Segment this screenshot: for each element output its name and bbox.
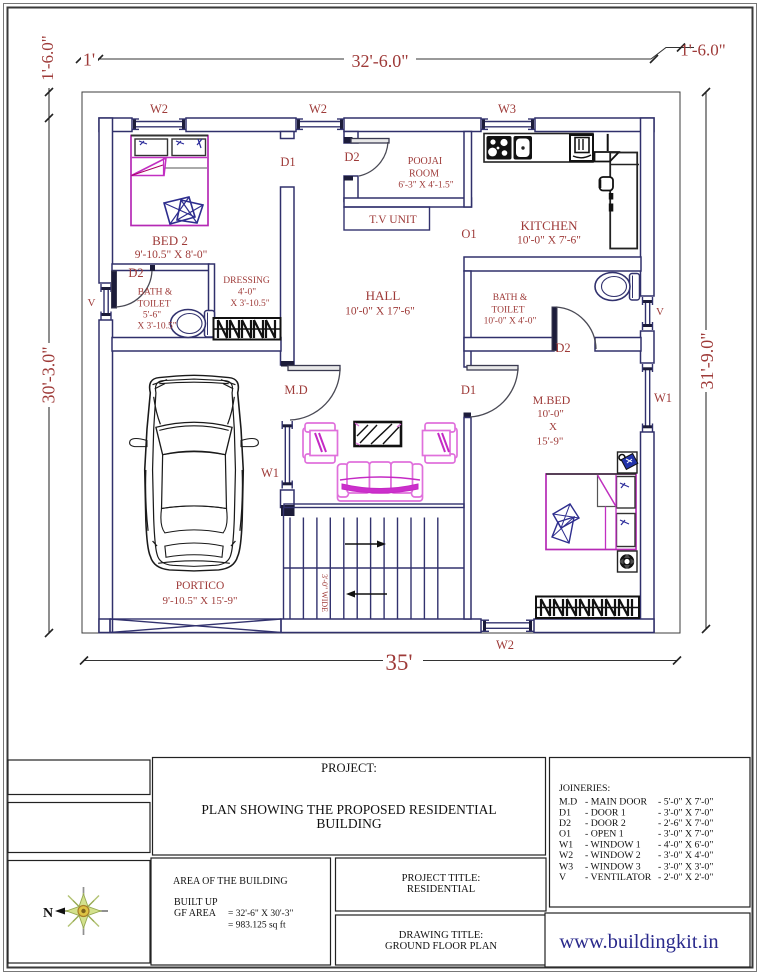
svg-text:W1: W1 — [654, 391, 672, 405]
svg-text:D1: D1 — [280, 155, 295, 169]
svg-text:X 3'-10.5": X 3'-10.5" — [137, 322, 176, 332]
svg-text:W2: W2 — [150, 102, 168, 116]
svg-text:- 4'-0" X 6'-0": - 4'-0" X 6'-0" — [658, 840, 713, 851]
svg-text:- 5'-0" X 7'-0": - 5'-0" X 7'-0" — [658, 797, 713, 808]
svg-text:www.buildingkit.in: www.buildingkit.in — [559, 931, 718, 953]
svg-text:1'-6.0": 1'-6.0" — [680, 41, 725, 60]
svg-text:- WINDOW 2: - WINDOW 2 — [585, 850, 641, 861]
svg-text:D2: D2 — [344, 150, 359, 164]
svg-text:= 983.125 sq ft: = 983.125 sq ft — [228, 920, 286, 931]
svg-text:9'-10.5" X 15'-9": 9'-10.5" X 15'-9" — [163, 595, 238, 607]
svg-text:10'-0" X 17'-6": 10'-0" X 17'-6" — [345, 306, 415, 318]
svg-text:W1: W1 — [559, 840, 573, 851]
svg-text:BED 2: BED 2 — [152, 233, 188, 248]
svg-text:- DOOR 1: - DOOR 1 — [585, 808, 626, 819]
svg-text:1'-6.0": 1'-6.0" — [38, 35, 57, 80]
svg-text:10'-0" X 7'-6": 10'-0" X 7'-6" — [517, 235, 581, 247]
svg-text:M.D: M.D — [559, 797, 577, 808]
svg-text:- 3'-0" X 7'-0": - 3'-0" X 7'-0" — [658, 808, 713, 819]
svg-text:9'-10.5" X 8'-0": 9'-10.5" X 8'-0" — [135, 249, 208, 261]
svg-text:- DOOR 2: - DOOR 2 — [585, 818, 626, 829]
svg-text:W3: W3 — [498, 102, 516, 116]
svg-text:W2: W2 — [309, 102, 327, 116]
svg-text:- 2'-6" X 7'-0": - 2'-6" X 7'-0" — [658, 818, 713, 829]
svg-text:D2: D2 — [559, 818, 571, 829]
svg-text:D1: D1 — [559, 808, 571, 819]
svg-text:W3: W3 — [559, 862, 573, 873]
svg-text:10'-0": 10'-0" — [537, 408, 564, 420]
svg-text:35': 35' — [385, 650, 412, 675]
svg-text:X: X — [549, 421, 557, 433]
svg-text:DRESSING: DRESSING — [223, 276, 270, 286]
svg-text:V: V — [88, 297, 96, 309]
svg-text:O1: O1 — [559, 829, 571, 840]
svg-text:AREA OF THE BUILDING: AREA OF THE BUILDING — [173, 876, 288, 887]
svg-text:- WINDOW 3: - WINDOW 3 — [585, 862, 641, 873]
svg-text:ROOM: ROOM — [409, 169, 439, 180]
svg-text:N: N — [43, 906, 53, 921]
svg-text:- WINDOW 1: - WINDOW 1 — [585, 840, 641, 851]
svg-text:D1: D1 — [461, 383, 476, 397]
svg-text:HALL: HALL — [366, 288, 401, 303]
svg-text:31'-9.0": 31'-9.0" — [697, 332, 717, 389]
svg-text:W1: W1 — [261, 466, 279, 480]
svg-text:O1: O1 — [461, 227, 476, 241]
svg-text:15'-9": 15'-9" — [537, 436, 564, 448]
svg-text:PROJECT:: PROJECT: — [321, 761, 377, 775]
svg-text:W2: W2 — [496, 638, 514, 652]
svg-text:BATH &: BATH & — [138, 288, 173, 298]
svg-text:1': 1' — [83, 50, 95, 70]
svg-text:X 3'-10.5": X 3'-10.5" — [230, 299, 269, 309]
svg-text:BUILDING: BUILDING — [316, 816, 381, 831]
svg-text:= 32'-6" X 30'-3": = 32'-6" X 30'-3" — [228, 909, 293, 919]
svg-text:M.D: M.D — [284, 383, 307, 397]
svg-text:GROUND FLOOR PLAN: GROUND FLOOR PLAN — [385, 941, 497, 952]
svg-text:M.BED: M.BED — [533, 393, 571, 407]
svg-text:BUILT UP: BUILT UP — [174, 897, 218, 908]
svg-text:D2: D2 — [555, 341, 570, 355]
svg-text:PLAN SHOWING THE PROPOSED RESI: PLAN SHOWING THE PROPOSED RESIDENTIAL — [201, 802, 496, 817]
svg-text:- 3'-0" X 7'-0": - 3'-0" X 7'-0" — [658, 829, 713, 840]
svg-text:10'-0" X 4'-0": 10'-0" X 4'-0" — [484, 317, 537, 327]
svg-text:- 2'-0" X 2'-0": - 2'-0" X 2'-0" — [658, 872, 713, 883]
svg-text:W2: W2 — [559, 850, 573, 861]
svg-text:GF AREA: GF AREA — [174, 908, 217, 919]
svg-text:- OPEN 1: - OPEN 1 — [585, 829, 624, 840]
svg-text:BATH &: BATH & — [493, 293, 528, 303]
svg-text:T.V UNIT: T.V UNIT — [369, 214, 416, 226]
svg-text:4'-0": 4'-0" — [238, 288, 256, 298]
svg-text:PROJECT TITLE:: PROJECT TITLE: — [402, 873, 481, 884]
svg-text:D2: D2 — [128, 266, 143, 280]
svg-text:5'-6": 5'-6" — [143, 311, 161, 321]
svg-text:30'-3.0": 30'-3.0" — [39, 346, 59, 403]
svg-text:RESIDENTIAL: RESIDENTIAL — [407, 884, 475, 895]
svg-text:3'-0" WIDE: 3'-0" WIDE — [320, 574, 329, 612]
svg-text:32'-6.0": 32'-6.0" — [351, 51, 408, 71]
svg-text:- VENTILATOR: - VENTILATOR — [585, 872, 652, 883]
svg-text:6'-3" X 4'-1.5": 6'-3" X 4'-1.5" — [398, 181, 453, 191]
svg-text:JOINERIES:: JOINERIES: — [559, 783, 610, 794]
svg-text:PORTICO: PORTICO — [176, 580, 225, 592]
svg-text:V: V — [559, 872, 566, 883]
svg-text:V: V — [656, 306, 664, 318]
svg-text:- 3'-0" X 3'-0": - 3'-0" X 3'-0" — [658, 862, 713, 873]
svg-text:TOILET: TOILET — [137, 300, 170, 310]
svg-text:KITCHEN: KITCHEN — [520, 218, 578, 233]
svg-text:TOILET: TOILET — [491, 306, 524, 316]
svg-text:POOJAI: POOJAI — [408, 156, 442, 167]
svg-text:- 3'-0" X 4'-0": - 3'-0" X 4'-0" — [658, 850, 713, 861]
svg-text:- MAIN DOOR: - MAIN DOOR — [585, 797, 648, 808]
svg-text:DRAWING TITLE:: DRAWING TITLE: — [399, 930, 483, 941]
